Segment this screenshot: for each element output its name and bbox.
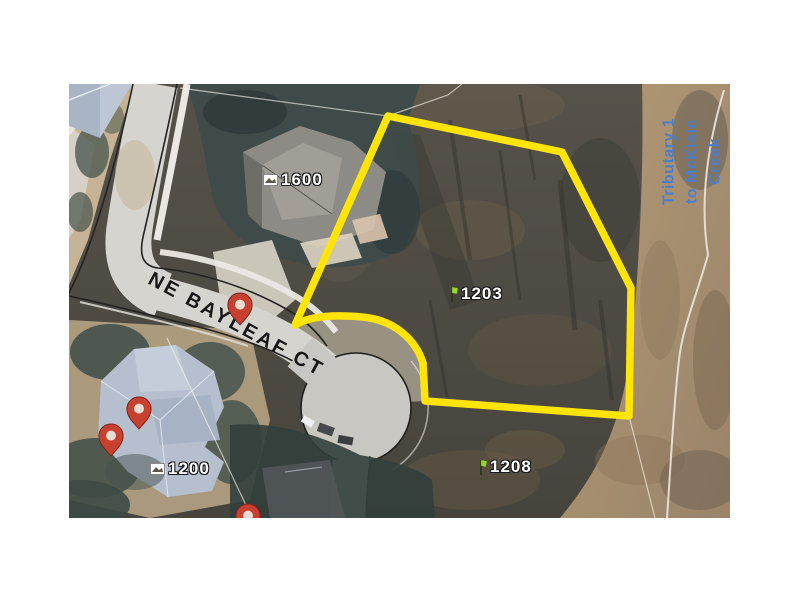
parcel-number: 1203	[461, 284, 503, 304]
map-page: NE BAYLEAF CT Tributary 1to McKisicCreek…	[0, 0, 800, 600]
map-canvas[interactable]: NE BAYLEAF CT Tributary 1to McKisicCreek…	[69, 84, 730, 518]
pin-icon	[235, 503, 261, 518]
parcel-number: 1600	[281, 170, 323, 190]
map-pin[interactable]	[98, 423, 124, 457]
map-pin[interactable]	[227, 292, 253, 326]
waterway-label: Tributary 1to McKisicCreek	[658, 97, 727, 227]
waterway-label-line: Creek	[704, 97, 727, 227]
waterway-label-line: Tributary 1	[658, 97, 681, 227]
parcel-label-1203[interactable]: 1203	[446, 284, 503, 304]
flag-icon	[475, 457, 487, 477]
pin-icon	[227, 292, 253, 326]
photo-icon	[150, 463, 165, 475]
photo-icon	[263, 174, 278, 186]
map-pin[interactable]	[235, 503, 261, 518]
parcel-label-1200[interactable]: 1200	[150, 459, 210, 479]
flag-icon	[446, 284, 458, 304]
pin-icon	[126, 396, 152, 430]
parcel-label-1208[interactable]: 1208	[475, 457, 532, 477]
map-pin[interactable]	[126, 396, 152, 430]
pin-icon	[98, 423, 124, 457]
parcel-number: 1208	[490, 457, 532, 477]
parcel-number: 1200	[168, 459, 210, 479]
waterway-label-line: to McKisic	[681, 97, 704, 227]
parcel-label-1600[interactable]: 1600	[263, 170, 323, 190]
